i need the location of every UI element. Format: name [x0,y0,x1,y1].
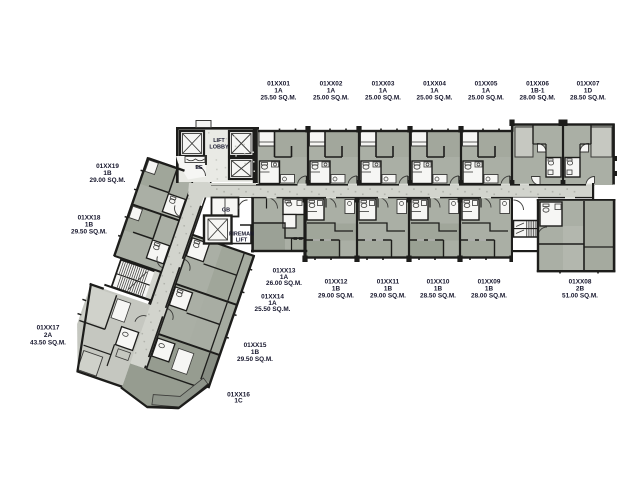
svg-text:1A: 1A [379,88,388,95]
svg-text:1B: 1B [384,286,393,293]
svg-text:01XX15: 01XX15 [244,342,267,349]
svg-text:26.00 SQ.M.: 26.00 SQ.M. [266,280,302,287]
svg-text:LIFT: LIFT [236,238,248,244]
svg-text:1B: 1B [251,349,260,356]
svg-text:1B: 1B [85,222,94,229]
svg-text:2A: 2A [44,332,53,339]
svg-text:25.50 SQ.M.: 25.50 SQ.M. [261,95,297,102]
svg-text:28.00 SQ.M.: 28.00 SQ.M. [471,293,507,300]
svg-text:01XX09: 01XX09 [478,279,501,286]
svg-text:01XX17: 01XX17 [37,325,60,332]
svg-text:FIREMAN: FIREMAN [229,232,254,238]
svg-text:29.50 SQ.M.: 29.50 SQ.M. [71,229,107,236]
svg-text:GB: GB [222,208,230,214]
svg-text:EE: EE [195,165,203,171]
svg-text:1A: 1A [482,88,491,95]
svg-text:1B: 1B [332,286,341,293]
svg-text:01XX05: 01XX05 [475,81,498,88]
svg-text:29.00 SQ.M.: 29.00 SQ.M. [370,293,406,300]
svg-text:1B-1: 1B-1 [531,88,545,95]
svg-text:1D: 1D [584,88,593,95]
svg-text:1A: 1A [327,88,336,95]
svg-text:01XX03: 01XX03 [372,81,395,88]
svg-text:25.00 SQ.M.: 25.00 SQ.M. [468,95,504,102]
svg-text:29.00 SQ.M.: 29.00 SQ.M. [90,177,126,184]
svg-text:28.50 SQ.M.: 28.50 SQ.M. [420,293,456,300]
svg-text:28.00 SQ.M.: 28.00 SQ.M. [520,95,556,102]
svg-text:1A: 1A [274,88,283,95]
svg-text:25.00 SQ.M.: 25.00 SQ.M. [313,95,349,102]
svg-text:LIFT: LIFT [213,138,225,144]
svg-text:1A: 1A [430,88,439,95]
svg-text:1C: 1C [234,398,243,405]
svg-text:1B: 1B [103,170,112,177]
svg-text:01XX10: 01XX10 [427,279,450,286]
svg-text:01XX04: 01XX04 [423,81,446,88]
svg-text:25.50 SQ.M.: 25.50 SQ.M. [255,306,291,313]
svg-text:43.50 SQ.M.: 43.50 SQ.M. [30,340,66,347]
svg-text:51.00 SQ.M.: 51.00 SQ.M. [562,293,598,300]
svg-text:01XX01: 01XX01 [267,81,290,88]
svg-text:01XX12: 01XX12 [325,279,348,286]
svg-text:2B: 2B [576,286,585,293]
svg-text:25.00 SQ.M.: 25.00 SQ.M. [365,95,401,102]
svg-text:01XX19: 01XX19 [96,163,119,170]
svg-text:29.00 SQ.M.: 29.00 SQ.M. [318,293,354,300]
svg-text:01XX07: 01XX07 [577,81,600,88]
svg-text:25.00 SQ.M.: 25.00 SQ.M. [417,95,453,102]
svg-text:01XX18: 01XX18 [78,215,101,222]
svg-text:01XX06: 01XX06 [526,81,549,88]
svg-text:28.50 SQ.M.: 28.50 SQ.M. [570,95,606,102]
svg-text:1B: 1B [434,286,443,293]
svg-text:01XX02: 01XX02 [320,81,343,88]
svg-text:1B: 1B [485,286,494,293]
svg-text:LOBBY: LOBBY [209,145,229,151]
svg-text:01XX08: 01XX08 [569,279,592,286]
svg-text:29.50 SQ.M.: 29.50 SQ.M. [237,356,273,363]
svg-text:01XX11: 01XX11 [377,279,400,286]
